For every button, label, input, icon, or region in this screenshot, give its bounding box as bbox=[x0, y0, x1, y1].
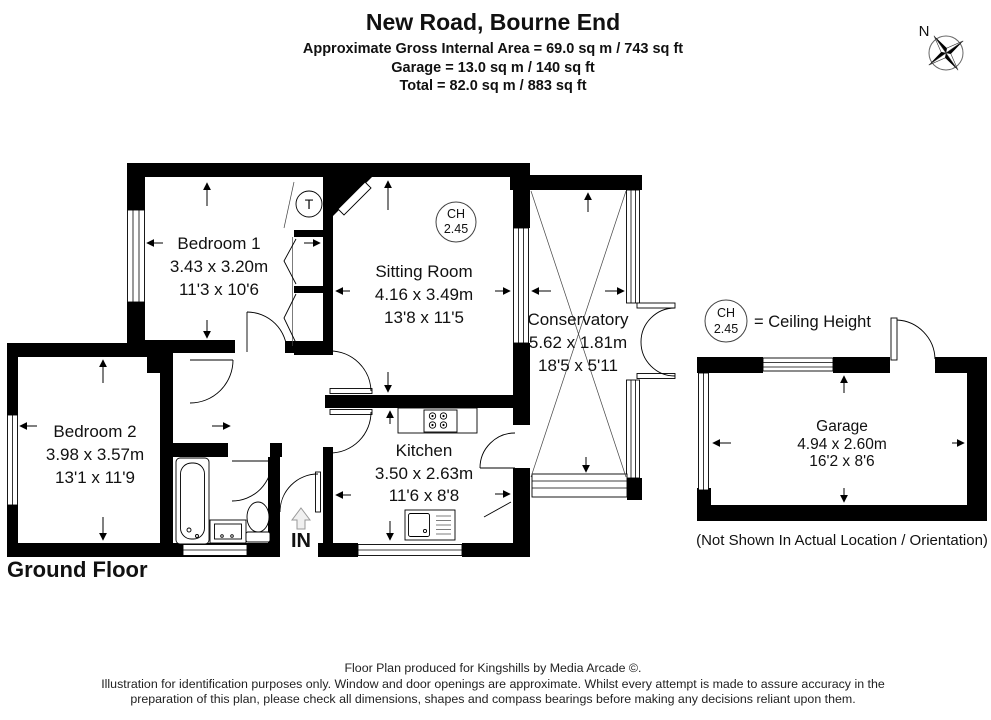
kitchen-door bbox=[330, 410, 372, 454]
total-area-line: Total = 82.0 sq m / 883 sq ft bbox=[399, 78, 586, 94]
garage-side-door bbox=[891, 318, 935, 360]
hall-cupboards: T bbox=[284, 182, 322, 346]
hob-icon bbox=[424, 410, 457, 432]
gross-area-line: Approximate Gross Internal Area = 69.0 s… bbox=[303, 41, 683, 57]
bathroom-window bbox=[183, 545, 247, 556]
tank-label: T bbox=[305, 196, 314, 212]
page-title: New Road, Bourne End bbox=[366, 9, 620, 35]
room-name: Sitting Room bbox=[375, 262, 472, 281]
bedroom1-door bbox=[247, 312, 287, 352]
sitting-room-label: Sitting Room 4.16 x 3.49m 13'8 x 11'5 bbox=[375, 262, 473, 327]
compass-rose-icon: N bbox=[917, 23, 975, 82]
legend-ch-value: 2.45 bbox=[714, 322, 738, 336]
conservatory-right-window-upper bbox=[627, 190, 640, 303]
conservatory-left-window bbox=[514, 228, 529, 343]
compass-north-label: N bbox=[919, 23, 930, 40]
floor-plan-canvas: New Road, Bourne End Approximate Gross I… bbox=[0, 0, 991, 720]
bedroom2-label: Bedroom 2 3.98 x 3.57m 13'1 x 11'9 bbox=[46, 422, 144, 487]
ceiling-height-legend: CH 2.45 = Ceiling Height bbox=[705, 300, 871, 342]
garage-area-line: Garage = 13.0 sq m / 140 sq ft bbox=[391, 60, 595, 76]
conservatory-right-window-lower bbox=[627, 380, 640, 478]
garage-window bbox=[763, 358, 833, 371]
footer-disclaimer-line1: Illustration for identification purposes… bbox=[101, 677, 885, 691]
room-name: Conservatory bbox=[527, 310, 629, 329]
kitchen-conservatory-door bbox=[480, 433, 515, 517]
entrance-label: IN bbox=[291, 530, 311, 552]
legend-ch-abbr: CH bbox=[717, 306, 735, 320]
toilet-icon bbox=[247, 502, 269, 532]
room-imperial: 16'2 x 8'6 bbox=[809, 453, 874, 470]
front-door bbox=[280, 472, 321, 512]
entrance-arrow-icon bbox=[292, 508, 310, 529]
room-metric: 4.16 x 3.49m bbox=[375, 285, 473, 304]
ch-abbr: CH bbox=[447, 207, 465, 221]
entrance-marker: IN bbox=[291, 508, 311, 552]
floor-name: Ground Floor bbox=[7, 557, 148, 582]
room-metric: 4.94 x 2.60m bbox=[797, 436, 887, 453]
legend-meaning: = Ceiling Height bbox=[754, 313, 871, 331]
garage-label: Garage 4.94 x 2.60m 16'2 x 8'6 (Not Show… bbox=[696, 418, 988, 549]
ch-value: 2.45 bbox=[444, 222, 468, 236]
bedroom2-window bbox=[8, 415, 18, 505]
room-metric: 5.62 x 1.81m bbox=[529, 333, 627, 352]
room-name: Bedroom 2 bbox=[53, 422, 136, 441]
room-imperial: 11'6 x 8'8 bbox=[389, 486, 459, 505]
footer-disclaimer-line2: preparation of this plan, please check a… bbox=[130, 692, 855, 706]
cupboard-bifold-door bbox=[284, 294, 296, 343]
footer-credit: Floor Plan produced for Kingshills by Me… bbox=[344, 661, 641, 675]
bedroom1-label: Bedroom 1 3.43 x 3.20m 11'3 x 10'6 bbox=[170, 234, 268, 299]
room-name: Kitchen bbox=[396, 441, 453, 460]
room-metric: 3.43 x 3.20m bbox=[170, 257, 268, 276]
room-imperial: 13'1 x 11'9 bbox=[55, 468, 135, 487]
kitchen-window bbox=[358, 545, 462, 556]
room-name: Bedroom 1 bbox=[177, 234, 260, 253]
garage-up-and-over-door bbox=[699, 373, 709, 490]
room-metric: 3.50 x 2.63m bbox=[375, 464, 473, 483]
footer-disclaimer: Floor Plan produced for Kingshills by Me… bbox=[101, 661, 885, 706]
bathroom-door bbox=[232, 461, 272, 501]
cupboard-bifold-door bbox=[284, 239, 296, 284]
plan-header: New Road, Bourne End Approximate Gross I… bbox=[303, 9, 683, 94]
ceiling-height-marker: CH 2.45 bbox=[436, 202, 476, 242]
conservatory-rear-window bbox=[532, 474, 627, 497]
room-imperial: 13'8 x 11'5 bbox=[384, 308, 464, 327]
room-name: Garage bbox=[816, 418, 868, 435]
bedroom1-window bbox=[128, 210, 145, 302]
room-imperial: 18'5 x 5'11 bbox=[538, 356, 618, 375]
floor-plan-page: New Road, Bourne End Approximate Gross I… bbox=[0, 0, 991, 720]
bathroom-fixtures bbox=[176, 458, 270, 544]
room-imperial: 11'3 x 10'6 bbox=[179, 280, 259, 299]
conservatory-french-doors bbox=[637, 303, 675, 379]
bedroom2-door bbox=[190, 360, 233, 403]
kitchen-label: Kitchen 3.50 x 2.63m 11'6 x 8'8 bbox=[375, 441, 473, 505]
garage-note: (Not Shown In Actual Location / Orientat… bbox=[696, 532, 988, 549]
sitting-room-door bbox=[330, 351, 372, 394]
walls bbox=[7, 163, 987, 557]
room-metric: 3.98 x 3.57m bbox=[46, 445, 144, 464]
conservatory-label: Conservatory 5.62 x 1.81m 18'5 x 5'11 bbox=[527, 310, 629, 375]
